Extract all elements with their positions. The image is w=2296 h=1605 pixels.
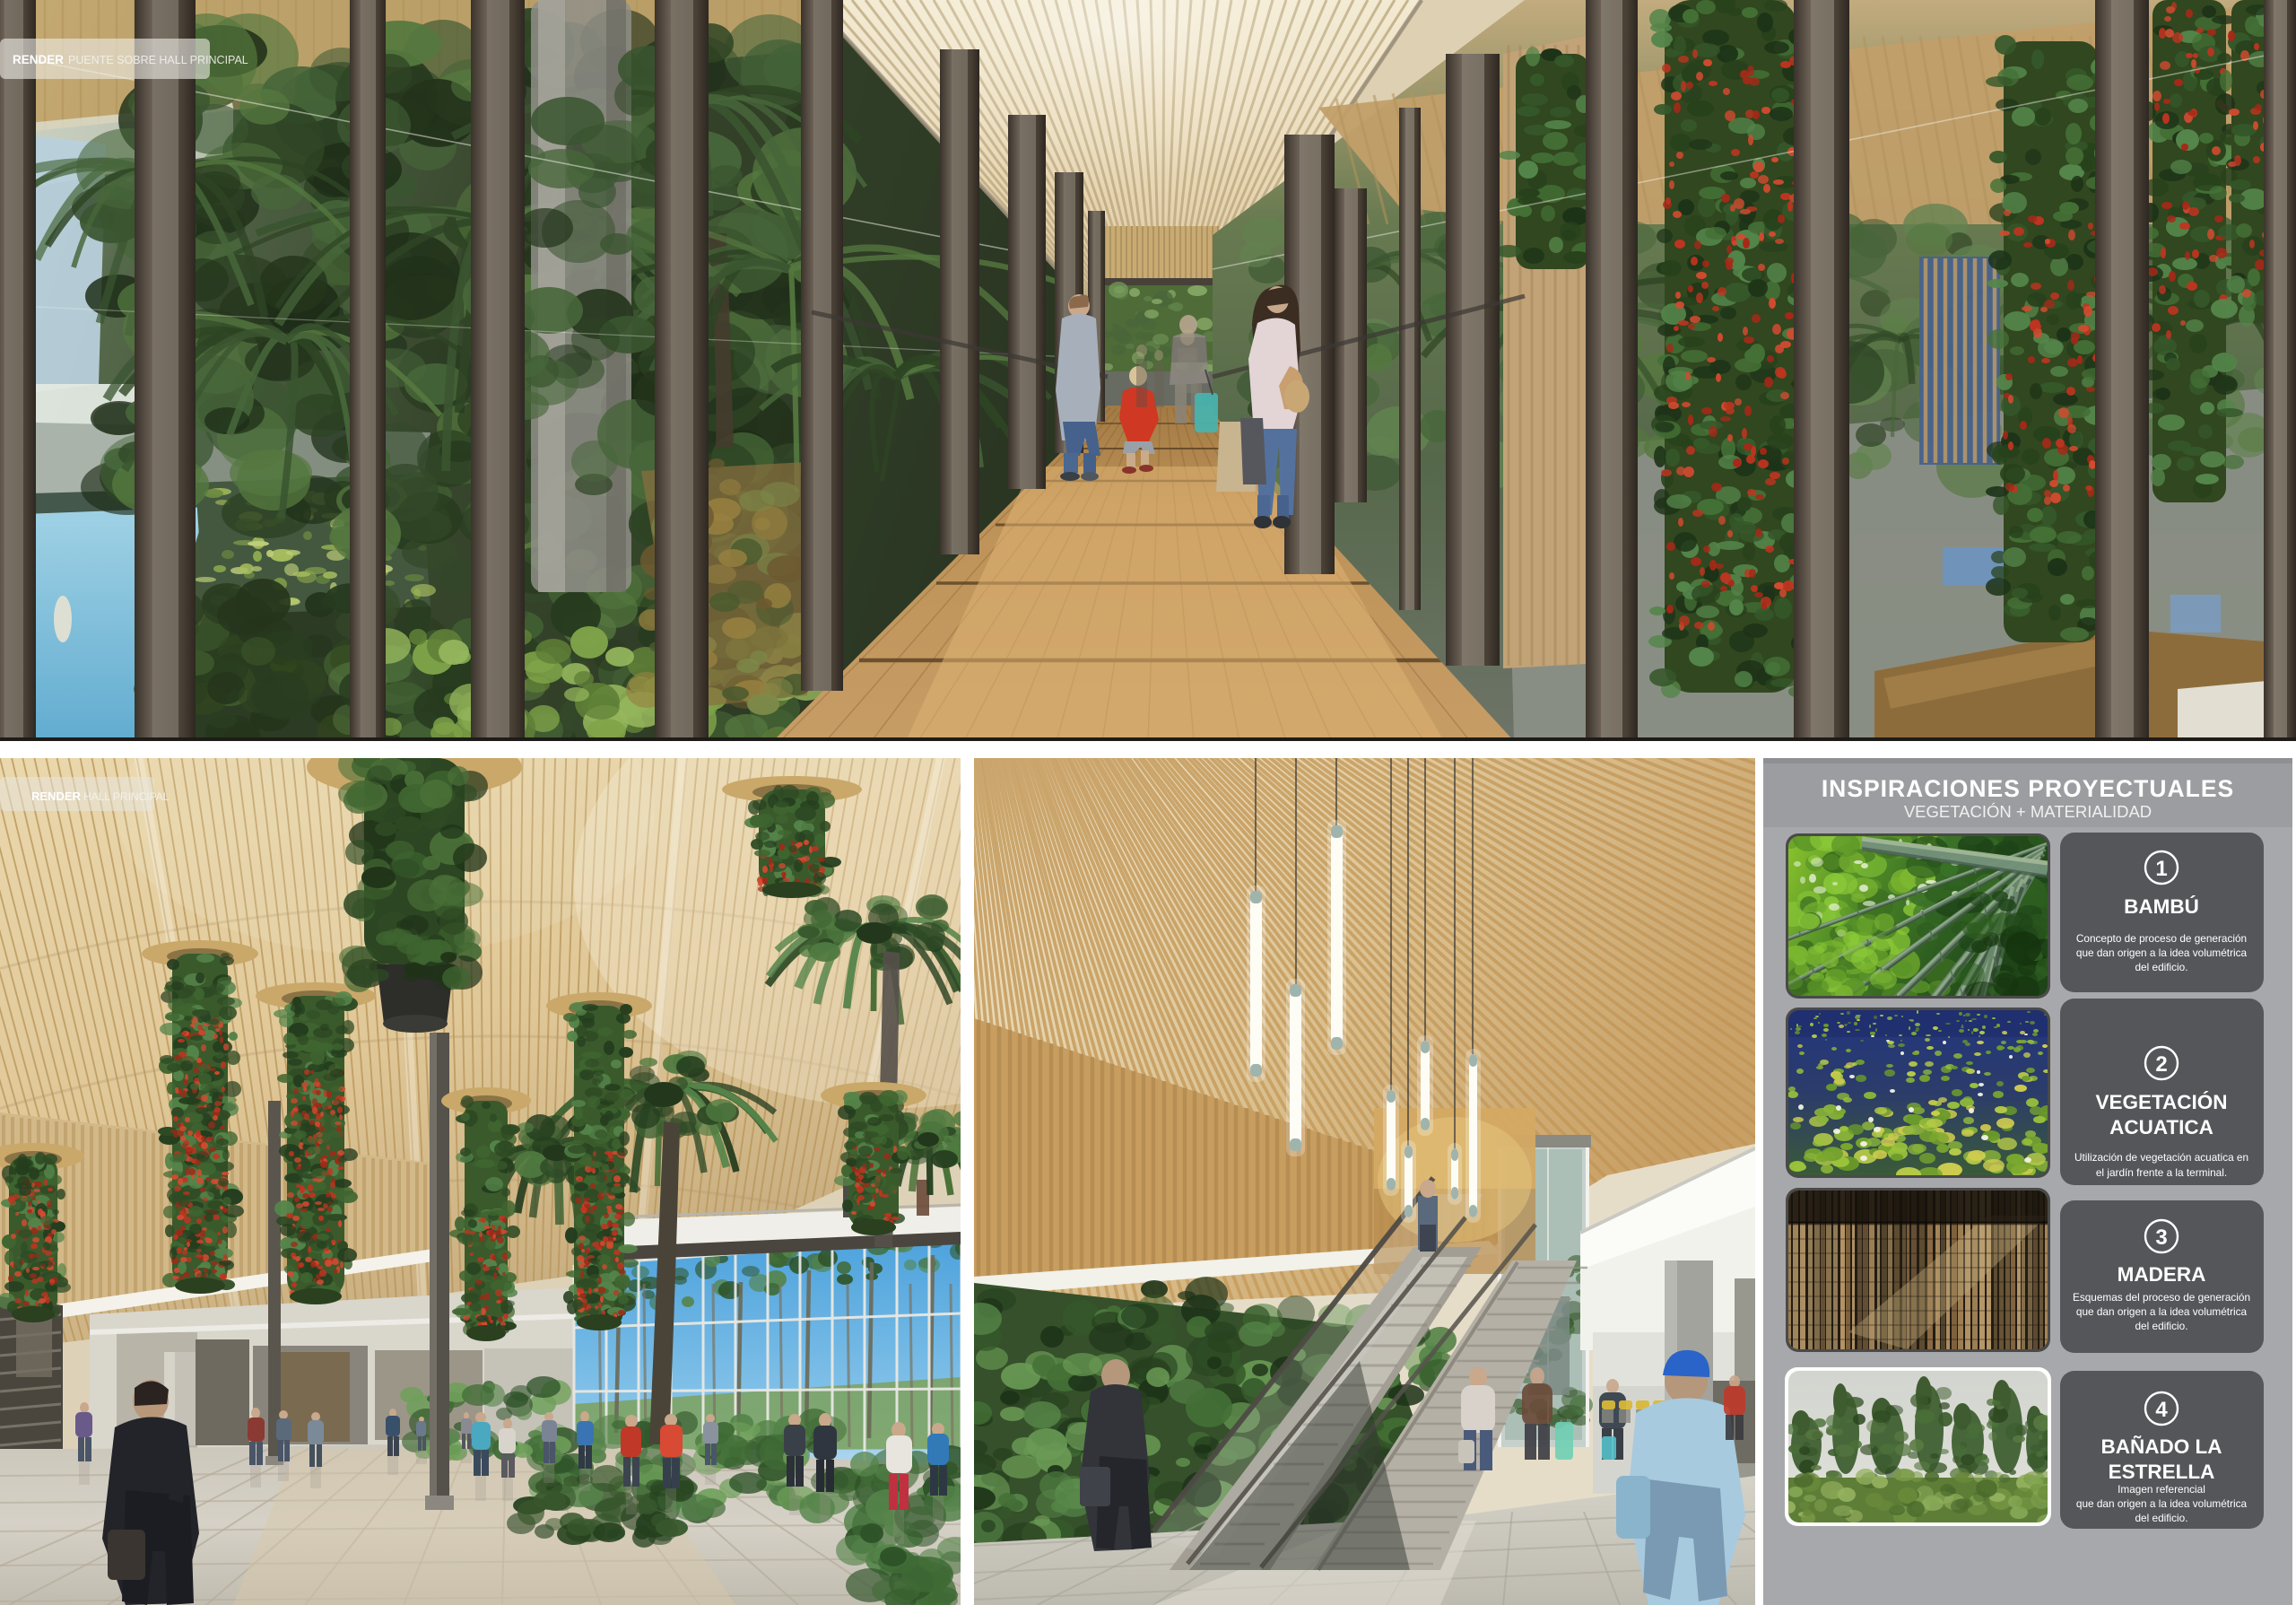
svg-text:PUENTE SOBRE HALL PRINCIPAL: PUENTE SOBRE HALL PRINCIPAL xyxy=(68,54,248,66)
svg-text:HALL PRINCIPAL: HALL PRINCIPAL xyxy=(83,790,170,803)
svg-text:RENDER: RENDER xyxy=(13,53,64,66)
svg-text:RENDER: RENDER xyxy=(31,789,82,803)
